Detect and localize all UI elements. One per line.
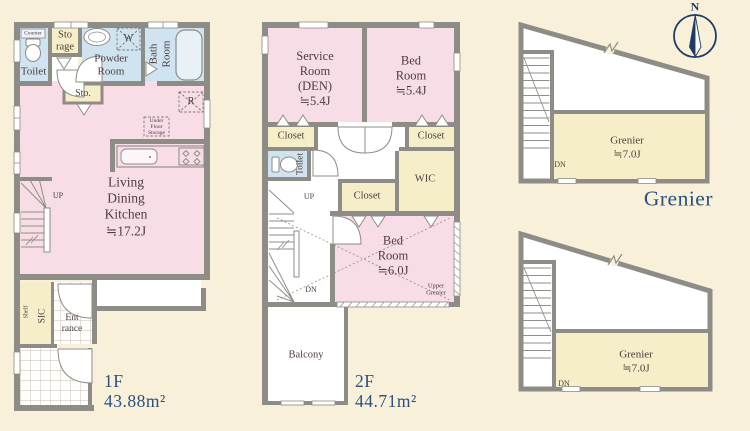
floorplan-page: N Counter Toilet Sto rage Powder Room Ba… — [0, 0, 750, 431]
floor2-area: 44.71m² — [355, 391, 417, 411]
sink-icon — [84, 29, 110, 46]
floor1-plan — [14, 22, 210, 411]
floor2-name: 2F — [355, 371, 374, 391]
floor1-title: 1F43.88m² — [104, 372, 166, 411]
compass-icon — [674, 14, 716, 57]
kitchen-counter — [117, 146, 204, 167]
bathtub-icon — [176, 30, 202, 80]
toilet-icon-1f — [26, 39, 41, 62]
toilet-counter-box — [21, 29, 45, 38]
grenier-bottom-plan — [521, 234, 710, 392]
compass-north-label: N — [691, 0, 700, 15]
toilet-icon-2f — [272, 157, 298, 172]
under-floor-storage-box — [144, 117, 169, 136]
floor1-name: 1F — [104, 371, 123, 391]
floor2-title: 2F44.71m² — [355, 372, 417, 411]
stove-icon — [179, 148, 204, 165]
grenier-section-title: Grenier — [644, 187, 713, 212]
floor2-plan — [262, 22, 460, 405]
floorplan-graphics — [0, 0, 750, 431]
floor1-area: 43.88m² — [104, 391, 166, 411]
